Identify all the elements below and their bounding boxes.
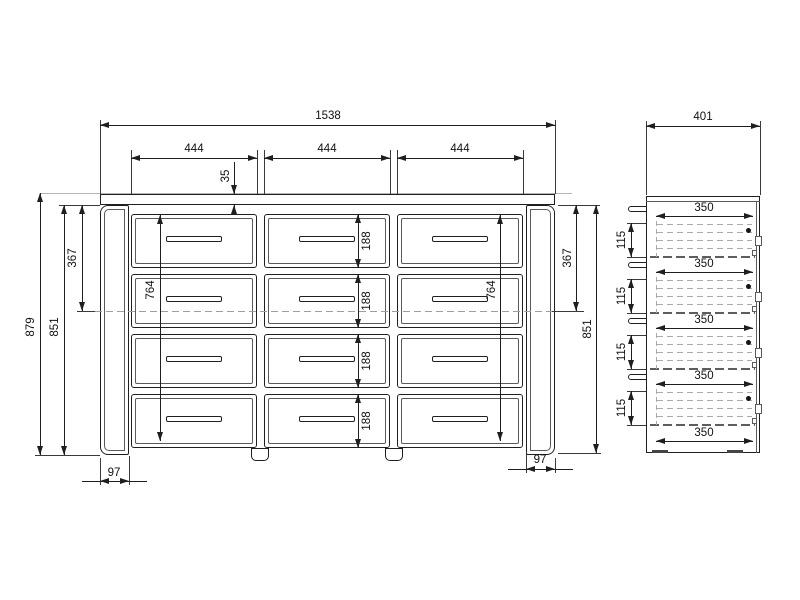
dim-arrow: [157, 432, 163, 441]
runner-clip: [755, 292, 762, 302]
hidden-line: [657, 296, 752, 297]
drawer-bottom-hidden-line: [650, 368, 755, 370]
dim-arrow: [546, 122, 555, 128]
dim-drawer-height-2: 188: [360, 281, 374, 321]
drawer-edge: [401, 338, 519, 384]
ext-line: [627, 313, 646, 314]
dim-arrow: [514, 155, 523, 161]
ext-line: [558, 205, 600, 206]
dim-arrow: [497, 432, 503, 441]
hidden-line: [656, 389, 657, 425]
dim-line: [358, 394, 359, 448]
dim-arrow: [231, 205, 237, 214]
dim-line: [631, 391, 632, 425]
dim-arrow: [656, 438, 665, 444]
dim-line: [358, 214, 359, 268]
dim-top-to-reference-right: 367: [561, 238, 575, 278]
ext-line: [646, 121, 647, 195]
cam-fitting: [746, 284, 751, 289]
ext-line: [627, 257, 646, 258]
dim-arrow: [628, 360, 634, 369]
ext-line: [77, 311, 95, 312]
dim-arrow: [131, 155, 140, 161]
drawer-edge: [135, 338, 253, 384]
drawer-handle: [432, 416, 488, 422]
hidden-line: [657, 416, 752, 417]
top-panel: [100, 194, 555, 205]
dim-arrow: [744, 325, 753, 331]
dim-arrow: [497, 215, 503, 224]
dim-side-panel-width-left: 97: [99, 467, 129, 480]
ext-line: [760, 121, 761, 195]
ext-line: [627, 369, 646, 370]
drawer-edge: [135, 398, 253, 444]
dim-arrow: [628, 391, 634, 400]
dim-line: [631, 335, 632, 369]
hidden-line: [657, 304, 752, 305]
drawer-edge: [401, 398, 519, 444]
dim-line: [656, 384, 753, 385]
dim-arrow: [100, 478, 109, 484]
drawer-edge: [401, 278, 519, 324]
dim-line: [82, 481, 147, 482]
dim-arrow: [120, 478, 129, 484]
right-side-panel: [526, 205, 555, 455]
dim-drawer-height-1: 188: [360, 221, 374, 261]
dim-line: [82, 205, 83, 311]
dim-arrow: [744, 438, 753, 444]
dim-drawer-side-height-1: 115: [615, 220, 629, 260]
dim-line: [131, 158, 257, 159]
hidden-line: [657, 288, 752, 289]
dim-line: [656, 216, 753, 217]
drawer-handle-profile: [628, 262, 647, 268]
drawer-handle-profile: [628, 318, 647, 324]
hidden-line: [657, 392, 752, 393]
ext-line: [390, 150, 391, 194]
ext-line: [552, 311, 584, 312]
drawer-handle: [432, 356, 488, 362]
runner-clip: [755, 404, 762, 414]
hidden-line: [657, 360, 752, 361]
dim-arrow: [355, 214, 361, 223]
drawer-handle: [299, 356, 355, 362]
hidden-line: [656, 277, 657, 313]
dim-arrow: [628, 335, 634, 344]
dim-arrow: [79, 302, 85, 311]
dim-arrow: [646, 123, 655, 129]
dim-drawer-side-height-4: 115: [615, 388, 629, 428]
dim-arrow: [751, 123, 760, 129]
drawer-front-r2c1: [131, 274, 257, 328]
runner-clip: [755, 348, 762, 358]
hidden-line: [657, 280, 752, 281]
hidden-line: [657, 336, 752, 337]
ext-line: [555, 120, 556, 194]
ext-line: [131, 150, 132, 194]
ext-line: [257, 150, 258, 194]
dim-line: [160, 215, 161, 441]
dim-drawer-width-1: 444: [163, 143, 225, 156]
ext-line: [397, 150, 398, 194]
hidden-line: [657, 352, 752, 353]
runner-clip: [752, 306, 757, 312]
drawer-handle: [166, 356, 222, 362]
dim-arrow: [79, 205, 85, 214]
dim-arrow: [573, 302, 579, 311]
dim-runner-depth-4: 350: [673, 370, 735, 383]
top-panel-underside: [646, 201, 760, 202]
drawer-edge: [401, 218, 519, 264]
dim-arrow: [355, 259, 361, 268]
drawer-handle: [432, 236, 488, 242]
runner-clip: [752, 362, 757, 368]
dim-arrow: [656, 381, 665, 387]
drawer-handle: [166, 236, 222, 242]
dim-arrow: [628, 416, 634, 425]
dim-arrow: [37, 193, 43, 202]
dim-carcass-height-right: 851: [581, 309, 595, 349]
drawer-front-r3c1: [131, 334, 257, 388]
drawer-front-r1c1: [131, 214, 257, 268]
drawer-front-r3c3: [397, 334, 523, 388]
drawer-edge: [268, 218, 386, 264]
dim-carcass-height-left: 851: [48, 307, 62, 347]
dim-arrow: [744, 269, 753, 275]
dim-drawer-bank-height-right: 764: [485, 270, 499, 310]
dim-line: [631, 223, 632, 257]
hidden-line: [657, 240, 752, 241]
dim-top-to-reference-left: 367: [66, 238, 80, 278]
dim-line: [358, 334, 359, 388]
drawer-front-r4c1: [131, 394, 257, 448]
ext-line: [627, 425, 646, 426]
drawer-handle: [432, 296, 488, 302]
dim-drawer-side-height-2: 115: [615, 276, 629, 316]
dim-arrow: [628, 223, 634, 232]
dim-arrow: [546, 466, 555, 472]
drawer-bottom-hidden-line: [650, 312, 755, 314]
reference-hidden-line: [95, 311, 552, 312]
ext-line: [264, 150, 265, 194]
dim-arrow: [656, 325, 665, 331]
hidden-line: [657, 344, 752, 345]
ext-line: [523, 150, 524, 194]
dim-arrow: [61, 446, 67, 455]
dim-arrow: [355, 394, 361, 403]
dim-line: [64, 205, 65, 455]
ext-line: [627, 335, 646, 336]
drawer-edge: [268, 338, 386, 384]
drawer-front-r3c2: [264, 334, 390, 388]
hidden-line: [656, 221, 657, 257]
ext-line: [59, 205, 100, 206]
drawer-front-r2c2: [264, 274, 390, 328]
dim-arrow: [744, 213, 753, 219]
ext-line: [558, 453, 601, 454]
dim-top-thickness: 35: [219, 156, 233, 196]
dim-arrow: [355, 379, 361, 388]
dim-line: [358, 274, 359, 328]
cam-fitting: [746, 228, 751, 233]
drawer-front-r1c3: [397, 214, 523, 268]
dim-line: [596, 205, 597, 453]
foot-mark: [727, 450, 743, 453]
dim-line: [234, 162, 235, 194]
runner-clip: [752, 250, 757, 256]
drawer-bottom-hidden-line: [650, 424, 755, 426]
dim-overall-height: 879: [24, 307, 38, 347]
side-panel-outline: [646, 196, 760, 453]
ext-line: [526, 452, 527, 473]
dim-line: [576, 205, 577, 311]
dim-arrow: [355, 319, 361, 328]
dim-arrow: [593, 205, 599, 214]
dim-arrow: [397, 155, 406, 161]
dim-drawer-width-2: 444: [296, 143, 358, 156]
runner-clip: [752, 418, 757, 424]
dim-runner-depth-2: 350: [673, 258, 735, 271]
side-view: 401 350 115 350: [0, 0, 800, 600]
dim-arrow: [355, 274, 361, 283]
dim-overall-depth: 401: [672, 111, 734, 124]
cam-fitting: [746, 340, 751, 345]
dim-drawer-height-4: 188: [360, 401, 374, 441]
dim-arrow: [381, 155, 390, 161]
dim-arrow: [656, 213, 665, 219]
drawer-bottom-hidden-line: [650, 256, 755, 258]
hidden-line: [657, 408, 752, 409]
drawer-edge: [268, 278, 386, 324]
dim-arrow: [355, 439, 361, 448]
dim-arrow: [573, 205, 579, 214]
hidden-line: [657, 400, 752, 401]
dim-line: [40, 193, 41, 455]
dim-arrow: [37, 446, 43, 455]
dim-drawer-bank-height-left: 764: [144, 270, 158, 310]
dim-arrow: [628, 304, 634, 313]
drawer-handle: [299, 416, 355, 422]
drawer-handle: [166, 296, 222, 302]
ext-line: [35, 455, 100, 456]
drawer-front-r2c3: [397, 274, 523, 328]
hidden-line: [657, 232, 752, 233]
drawer-handle: [166, 416, 222, 422]
dim-line: [234, 205, 235, 215]
dim-arrow: [157, 215, 163, 224]
dim-line: [264, 158, 390, 159]
dim-arrow: [593, 444, 599, 453]
dim-arrow: [628, 279, 634, 288]
runner-clip: [755, 236, 762, 246]
dim-arrow: [744, 381, 753, 387]
dim-line: [656, 441, 753, 442]
drawer-front-r4c3: [397, 394, 523, 448]
drawer-handle: [299, 296, 355, 302]
drawer-edge: [268, 398, 386, 444]
dim-arrow: [355, 334, 361, 343]
front-view: 1538 444 444 444 35 879: [0, 0, 800, 600]
drawer-front-r4c2: [264, 394, 390, 448]
ext-line: [627, 391, 646, 392]
technical-drawing: 1538 444 444 444 35 879: [0, 0, 800, 600]
dim-line: [100, 125, 555, 126]
dim-line: [508, 469, 573, 470]
foot: [385, 448, 403, 461]
dim-line: [646, 126, 760, 127]
hidden-line: [657, 224, 752, 225]
ext-line: [627, 223, 646, 224]
dim-arrow: [628, 248, 634, 257]
dim-overall-width: 1538: [297, 110, 359, 123]
dim-line: [631, 279, 632, 313]
drawer-edge: [135, 218, 253, 264]
right-side-panel-profile: [530, 209, 551, 451]
ext-line: [555, 458, 556, 473]
ext-line: [627, 279, 646, 280]
hidden-line: [656, 333, 657, 369]
dim-runner-depth-1: 350: [673, 202, 735, 215]
drawer-handle-profile: [628, 374, 647, 380]
ext-line: [129, 456, 130, 485]
left-side-panel: [100, 205, 129, 455]
dim-runner-depth-3: 350: [673, 314, 735, 327]
drawer-handle-profile: [628, 206, 647, 212]
dim-arrow: [264, 155, 273, 161]
dim-line: [656, 272, 753, 273]
drawer-front-r1c2: [264, 214, 390, 268]
drawer-edge: [135, 278, 253, 324]
foot: [251, 448, 269, 461]
dim-line: [397, 158, 523, 159]
hidden-line: [657, 248, 752, 249]
dim-arrow: [231, 185, 237, 194]
dim-line: [500, 215, 501, 441]
dim-drawer-side-height-3: 115: [615, 332, 629, 372]
back-panel-line: [756, 201, 757, 453]
dim-drawer-height-3: 188: [360, 341, 374, 381]
dim-arrow: [656, 269, 665, 275]
dim-runner-depth-5: 350: [673, 427, 735, 440]
left-side-panel-profile: [104, 209, 125, 451]
top-edge-line: [40, 193, 572, 194]
foot-mark: [652, 450, 668, 453]
dim-arrow: [61, 205, 67, 214]
dim-drawer-width-3: 444: [429, 143, 491, 156]
dim-arrow: [248, 155, 257, 161]
dim-arrow: [526, 466, 535, 472]
ext-line: [100, 458, 101, 485]
dim-side-panel-width-right: 97: [525, 454, 555, 467]
cam-fitting: [746, 396, 751, 401]
dim-line: [656, 328, 753, 329]
ext-line: [100, 120, 101, 194]
drawer-handle: [299, 236, 355, 242]
dim-arrow: [100, 122, 109, 128]
